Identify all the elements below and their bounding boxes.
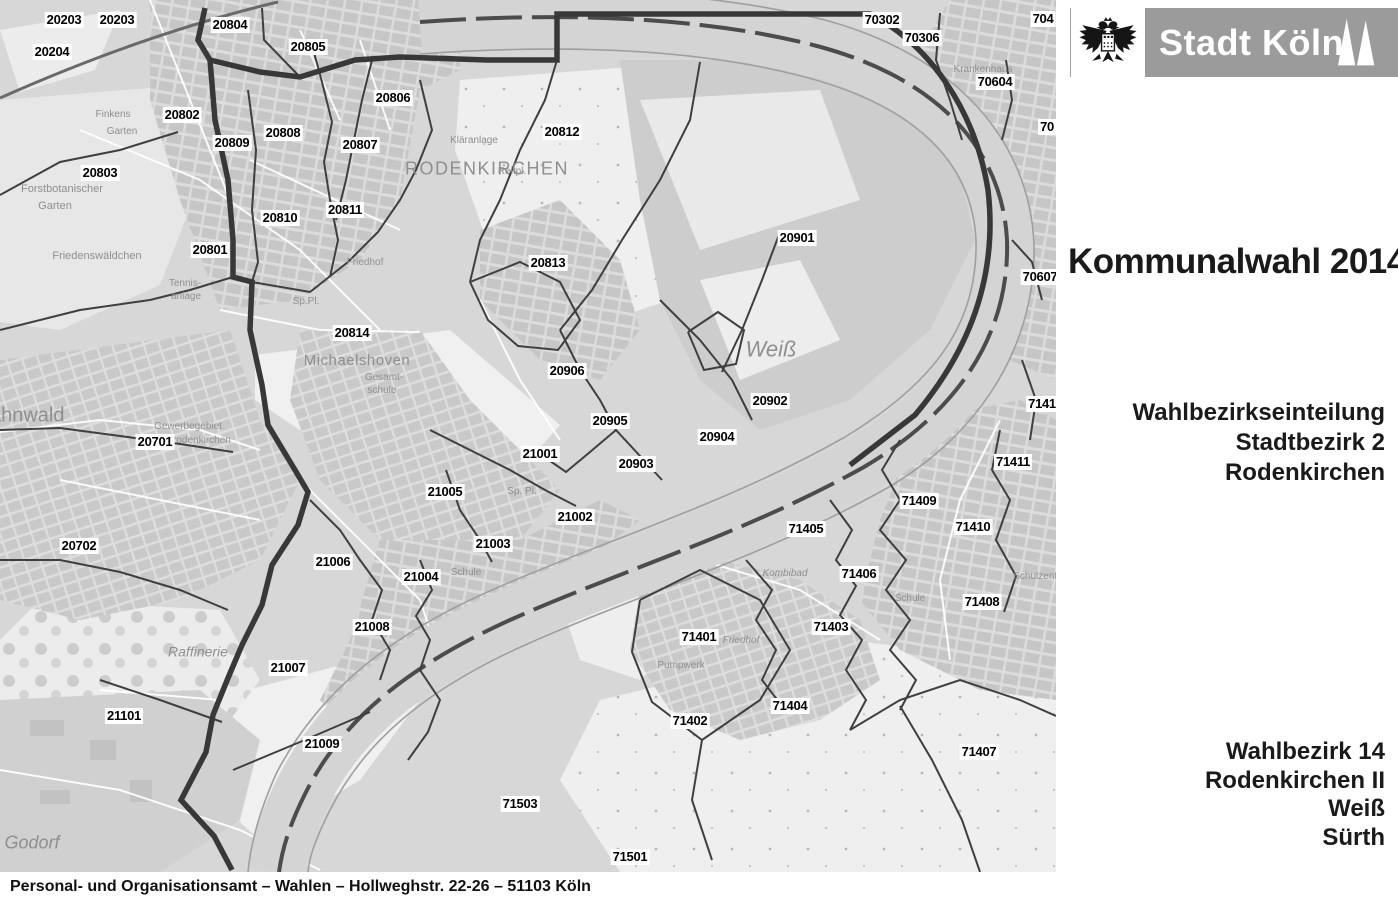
district-label-20814: 20814: [333, 325, 372, 341]
district-label-71401: 71401: [680, 629, 719, 645]
district-label-71406: 71406: [840, 566, 879, 582]
district-label-20801: 20801: [191, 242, 230, 258]
subtitle-line-1: Wahlbezirkseinteilung: [1133, 398, 1385, 428]
place-label: Raffinerie: [168, 645, 228, 660]
district-label-20204: 20204: [33, 44, 72, 60]
district-label-21002: 21002: [556, 509, 595, 525]
district-label-71404: 71404: [771, 698, 810, 714]
place-label: Schule: [895, 594, 926, 605]
district-label-20902: 20902: [751, 393, 790, 409]
logo-banner: Stadt Köln: [1145, 8, 1398, 77]
district-label-20804: 20804: [211, 17, 250, 33]
district-label-20810: 20810: [261, 210, 300, 226]
district-label-7141: 7141: [1026, 396, 1056, 412]
place-label: schule: [368, 386, 397, 397]
district-label-71402: 71402: [671, 713, 710, 729]
wahlbezirk-line-4: Sürth: [1205, 824, 1385, 853]
stadt-koeln-logo: Stadt Köln: [1070, 8, 1398, 77]
place-label: Garten: [107, 127, 138, 138]
district-label-21007: 21007: [269, 660, 308, 676]
district-label-71403: 71403: [812, 619, 851, 635]
subtitle-line-3: Rodenkirchen: [1133, 458, 1385, 488]
page-title: Kommunalwahl 2014: [1068, 242, 1398, 282]
district-label-21101: 21101: [105, 708, 143, 724]
page: RODENKIRCHENMichaelshovenWeißHahnwaldRaf…: [0, 0, 1398, 913]
place-label: Gesamt-: [365, 373, 403, 384]
place-label: Schule: [451, 568, 482, 579]
place-label: Weiß: [746, 337, 797, 360]
district-label-71407: 71407: [960, 744, 999, 760]
district-label-71501: 71501: [611, 849, 650, 865]
place-label: Sp. Pl.: [507, 487, 536, 498]
district-label-20203: 20203: [98, 12, 137, 28]
district-label-21008: 21008: [353, 619, 392, 635]
district-label-20203: 20203: [45, 12, 84, 28]
logo-city-name: Stadt Köln: [1145, 22, 1344, 64]
district-label-21005: 21005: [426, 484, 465, 500]
footer-text: Personal- und Organisationsamt – Wahlen …: [10, 878, 591, 896]
district-label-71408: 71408: [963, 594, 1002, 610]
district-label-20702: 20702: [60, 538, 99, 554]
district-label-20901: 20901: [778, 230, 817, 246]
district-label-20905: 20905: [591, 413, 630, 429]
place-label: Tennis-: [169, 279, 201, 290]
district-label-20903: 20903: [617, 456, 656, 472]
subtitle-line-2: Stadtbezirk 2: [1133, 428, 1385, 458]
place-label: Friedenswäldchen: [52, 251, 141, 263]
district-label-20811: 20811: [326, 202, 364, 218]
district-label-71410: 71410: [954, 519, 993, 535]
district-label-21003: 21003: [474, 536, 513, 552]
district-label-704: 704: [1031, 11, 1056, 27]
place-label: anlage: [171, 292, 201, 303]
district-label-70607: 70607: [1021, 269, 1056, 285]
info-panel: Stadt Köln Kommunalwahl 2014 Wahlbezirks…: [1056, 0, 1398, 913]
district-label-70604: 70604: [976, 74, 1015, 90]
subtitle-block: Wahlbezirkseinteilung Stadtbezirk 2 Rode…: [1133, 398, 1385, 488]
place-label: Friedhof: [347, 258, 384, 269]
wahlbezirk-line-2: Rodenkirchen II: [1205, 767, 1385, 796]
wahlbezirk-line-3: Weiß: [1205, 795, 1385, 824]
place-label: Forstbotanischer: [21, 184, 103, 196]
district-label-20812: 20812: [543, 124, 582, 140]
district-label-20808: 20808: [264, 125, 303, 141]
place-label: Friedhof: [723, 636, 760, 647]
place-label: Schulzentr.: [1013, 572, 1056, 583]
district-label-71405: 71405: [787, 521, 826, 537]
district-label-20806: 20806: [374, 90, 413, 106]
district-label-21009: 21009: [303, 736, 342, 752]
wahlbezirk-block: Wahlbezirk 14 Rodenkirchen II Weiß Sürth: [1205, 738, 1385, 852]
district-label-21006: 21006: [314, 554, 353, 570]
district-label-70306: 70306: [903, 30, 942, 46]
district-label-20805: 20805: [289, 39, 328, 55]
district-label-71503: 71503: [501, 796, 540, 812]
cologne-coat-of-arms-icon: [1070, 8, 1145, 77]
cathedral-spires-icon: [1338, 18, 1376, 71]
district-label-21001: 21001: [521, 446, 560, 462]
district-label-70: 70: [1038, 119, 1056, 135]
district-label-20809: 20809: [213, 135, 252, 151]
place-label: Kläranlage: [450, 136, 498, 147]
district-label-70302: 70302: [863, 12, 902, 28]
district-label-21004: 21004: [402, 569, 441, 585]
place-label: RODENKIRCHEN: [405, 160, 569, 179]
place-label: Kombibad: [762, 569, 807, 580]
city-district-map: RODENKIRCHENMichaelshovenWeißHahnwaldRaf…: [0, 0, 1056, 872]
district-label-20904: 20904: [698, 429, 737, 445]
place-label: Sp.Pl.: [293, 297, 320, 308]
district-label-20701: 20701: [136, 434, 175, 450]
place-label: Garten: [38, 201, 72, 213]
district-label-71411: 71411: [994, 454, 1032, 470]
place-label: Rodenkirchen: [169, 436, 231, 447]
place-label: Reitpl.: [498, 167, 526, 178]
place-label: Godorf: [4, 834, 59, 853]
district-label-20803: 20803: [81, 165, 120, 181]
district-label-20813: 20813: [529, 255, 568, 271]
district-label-20906: 20906: [548, 363, 587, 379]
district-label-20802: 20802: [163, 107, 202, 123]
place-label: Gewerbegebiet: [154, 422, 222, 433]
district-label-71409: 71409: [900, 493, 939, 509]
place-label: Finkens: [95, 110, 130, 121]
place-label: Hahnwald: [0, 406, 64, 427]
wahlbezirk-line-1: Wahlbezirk 14: [1205, 738, 1385, 767]
district-label-20807: 20807: [341, 137, 380, 153]
place-label: Pumpwerk: [657, 661, 704, 672]
place-label: Michaelshoven: [304, 353, 411, 369]
